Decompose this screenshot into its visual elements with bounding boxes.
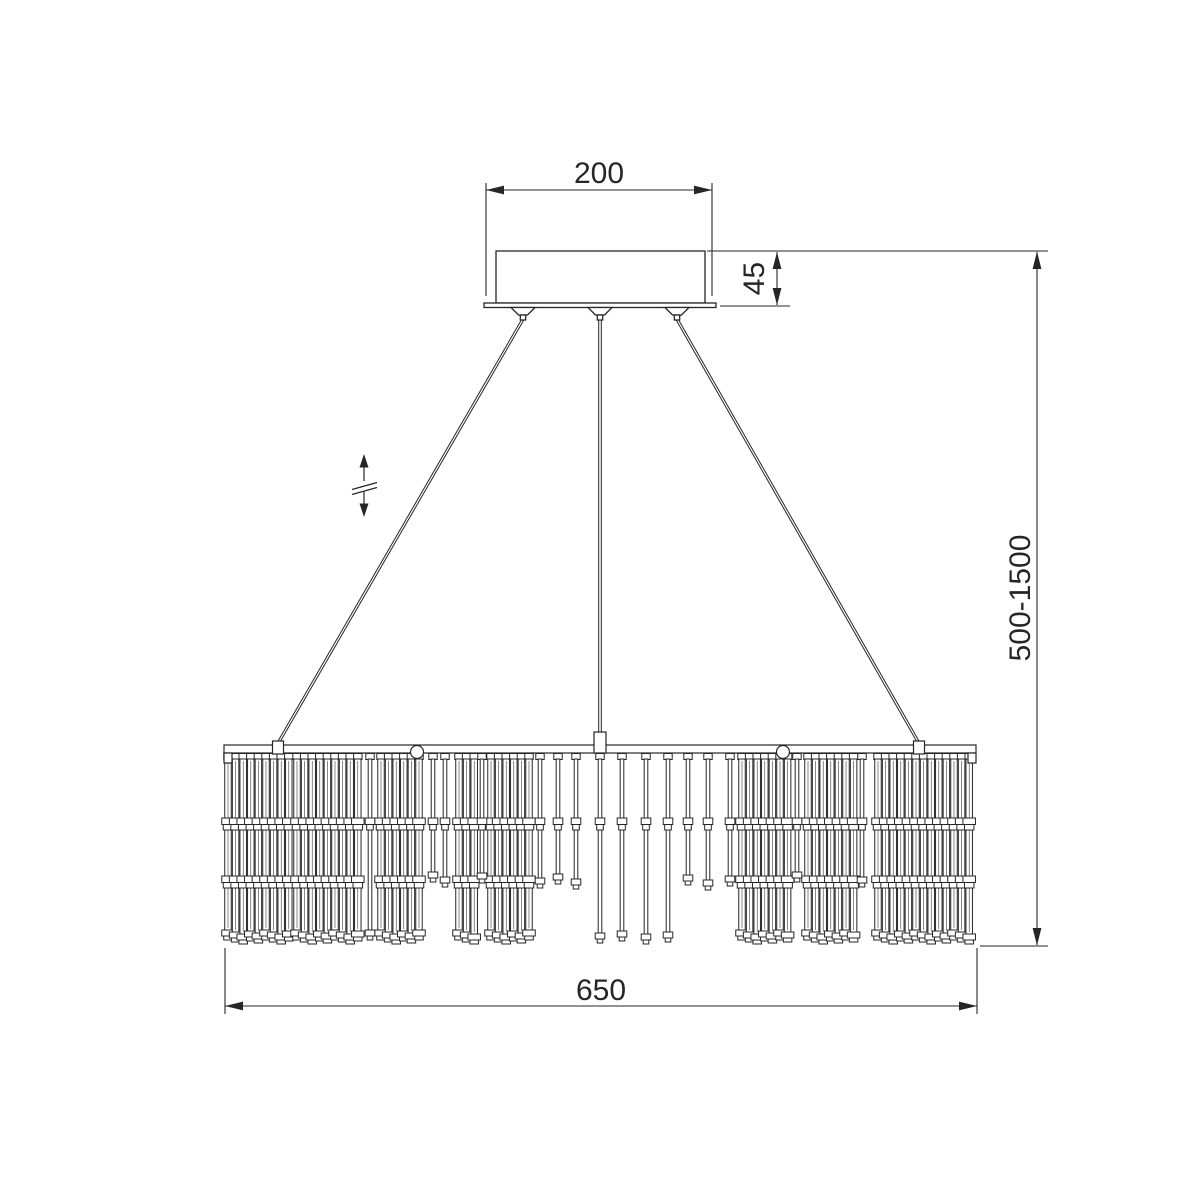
rim-end-bracket bbox=[224, 753, 232, 763]
arrowhead bbox=[773, 252, 782, 269]
dimension-canopy-height: 45 bbox=[720, 252, 790, 306]
dim-fixture-width-label: 650 bbox=[576, 974, 626, 1007]
arrowhead bbox=[959, 1002, 977, 1011]
suspension-cable-right bbox=[678, 319, 920, 743]
cable-mount-block bbox=[594, 732, 606, 753]
height-adjust-arrow-icon bbox=[352, 454, 377, 517]
dim-canopy-height-label: 45 bbox=[738, 262, 771, 295]
arrowhead bbox=[1033, 928, 1042, 946]
canopy-body bbox=[496, 251, 705, 303]
ceiling-canopy bbox=[484, 251, 716, 320]
suspension-cable-left bbox=[277, 319, 522, 743]
suspension-cables bbox=[277, 319, 920, 743]
cable-hanger bbox=[665, 308, 689, 321]
drawing-canvas: 200 45 500-1500 650 bbox=[0, 0, 1200, 1200]
cable-hanger bbox=[511, 308, 535, 321]
cable-mount-block bbox=[273, 741, 284, 754]
frame-screw bbox=[777, 746, 790, 759]
crystal-rods bbox=[222, 754, 976, 945]
arrowhead bbox=[1033, 252, 1042, 270]
dimension-fixture-width: 650 bbox=[225, 948, 977, 1014]
arrowhead bbox=[694, 186, 712, 195]
suspension-cable-left bbox=[279, 319, 524, 743]
arrowhead bbox=[486, 186, 504, 195]
dim-canopy-width-label: 200 bbox=[574, 157, 624, 190]
cable-hanger bbox=[588, 308, 612, 321]
arrowhead bbox=[773, 288, 782, 305]
canopy-base-plate bbox=[484, 303, 716, 308]
suspension-cable-right bbox=[676, 319, 918, 743]
rim-end-bracket bbox=[968, 753, 976, 763]
frame-screw bbox=[411, 746, 424, 759]
arrowhead bbox=[225, 1002, 243, 1011]
cable-mount-block bbox=[914, 741, 925, 754]
dim-suspension-height-label: 500-1500 bbox=[1004, 535, 1037, 662]
chandelier-dimension-drawing: 200 45 500-1500 650 bbox=[0, 0, 1200, 1200]
